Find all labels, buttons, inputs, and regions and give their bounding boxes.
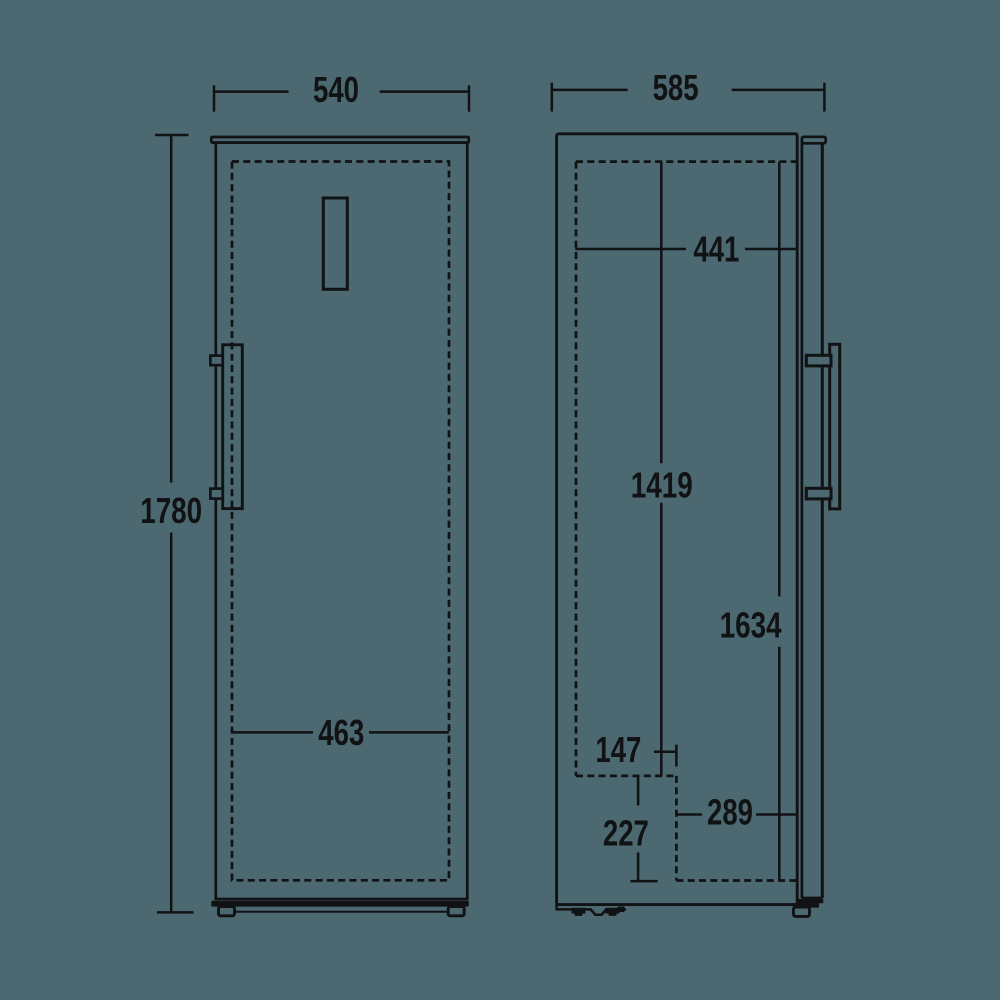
svg-text:289: 289 xyxy=(707,791,753,832)
svg-text:463: 463 xyxy=(318,712,364,753)
svg-text:585: 585 xyxy=(653,67,699,108)
svg-text:1634: 1634 xyxy=(720,605,782,646)
svg-text:441: 441 xyxy=(693,228,739,269)
svg-text:227: 227 xyxy=(603,812,649,853)
svg-text:1780: 1780 xyxy=(140,490,202,531)
svg-text:540: 540 xyxy=(313,69,359,110)
svg-text:147: 147 xyxy=(595,729,641,770)
svg-text:1419: 1419 xyxy=(631,465,693,506)
